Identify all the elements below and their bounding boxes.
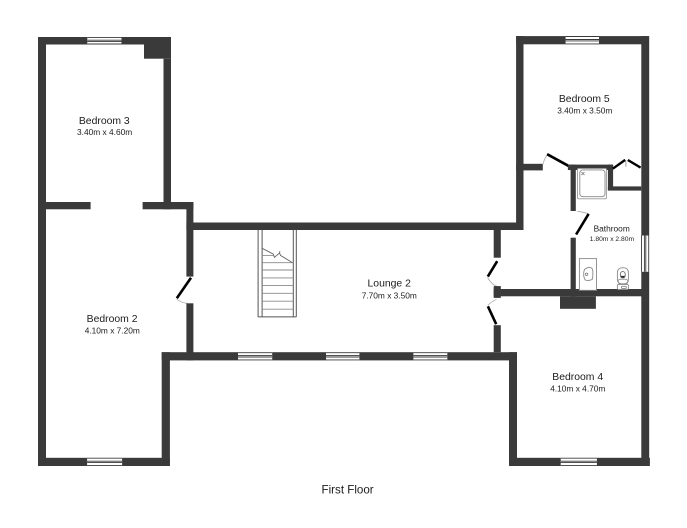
svg-text:Bedroom 2: Bedroom 2 xyxy=(87,314,138,325)
svg-text:Lounge 2: Lounge 2 xyxy=(368,279,412,290)
svg-text:4.10m x 7.20m: 4.10m x 7.20m xyxy=(85,325,140,335)
svg-text:4.10m x 4.70m: 4.10m x 4.70m xyxy=(550,383,605,393)
svg-text:Bathroom: Bathroom xyxy=(594,223,630,233)
svg-text:7.70m x 3.50m: 7.70m x 3.50m xyxy=(362,290,417,300)
svg-text:3.40m x 3.50m: 3.40m x 3.50m xyxy=(557,105,612,115)
svg-text:Bedroom 5: Bedroom 5 xyxy=(559,94,610,105)
svg-text:Bedroom 4: Bedroom 4 xyxy=(552,372,603,383)
svg-text:3.40m x 4.60m: 3.40m x 4.60m xyxy=(77,127,132,137)
svg-text:1.80m x 2.80m: 1.80m x 2.80m xyxy=(590,236,635,243)
svg-text:First Floor: First Floor xyxy=(322,483,374,496)
svg-text:Bedroom 3: Bedroom 3 xyxy=(79,116,130,127)
